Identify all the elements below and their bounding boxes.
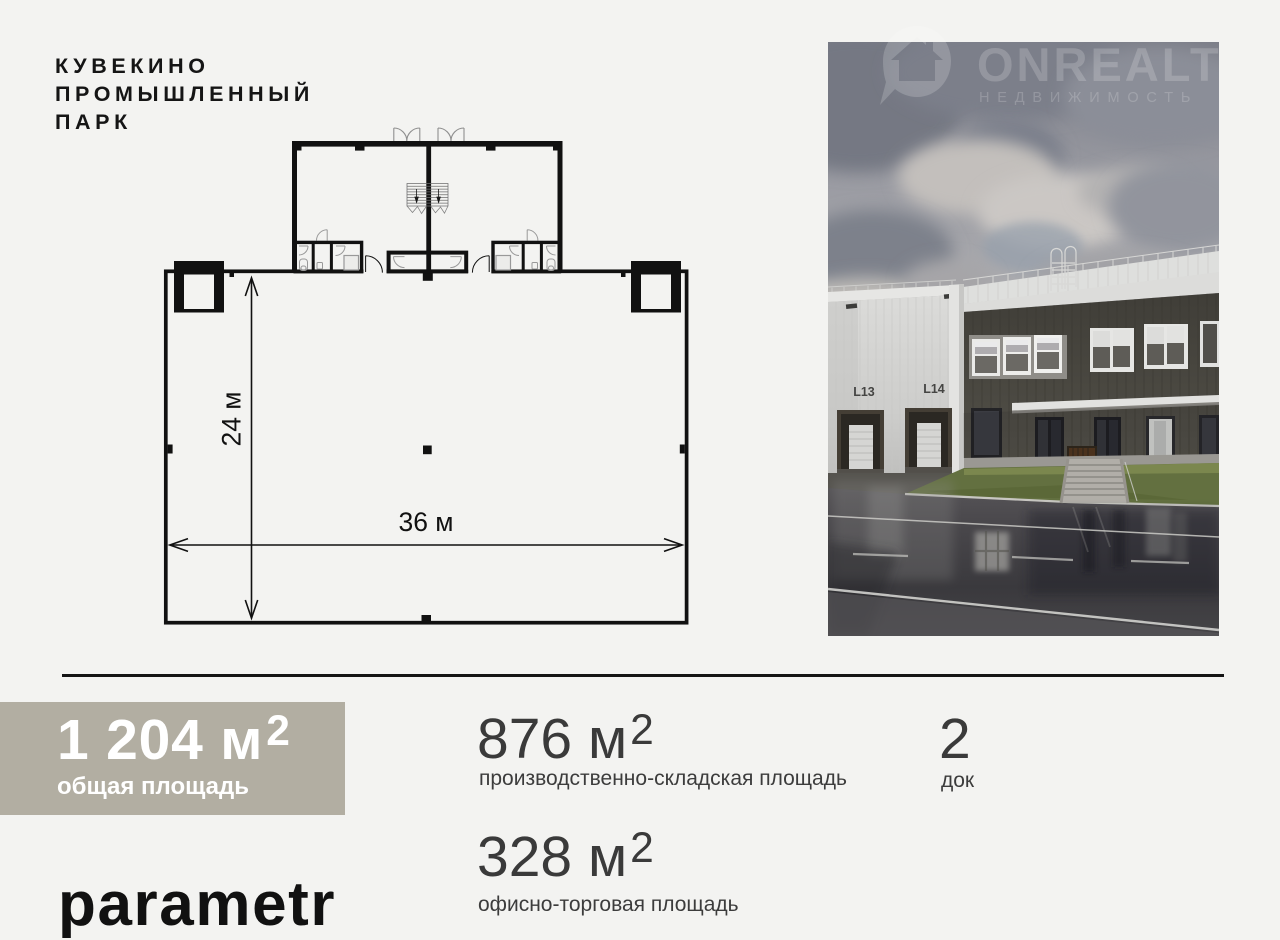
svg-text:24 м: 24 м xyxy=(217,391,247,446)
svg-text:L13: L13 xyxy=(853,385,875,399)
svg-text:ONREALT: ONREALT xyxy=(977,38,1222,91)
svg-text:НЕДВИЖИМОСТЬ: НЕДВИЖИМОСТЬ xyxy=(979,90,1198,106)
svg-text:L14: L14 xyxy=(923,382,945,396)
svg-text:36 м: 36 м xyxy=(398,507,453,537)
